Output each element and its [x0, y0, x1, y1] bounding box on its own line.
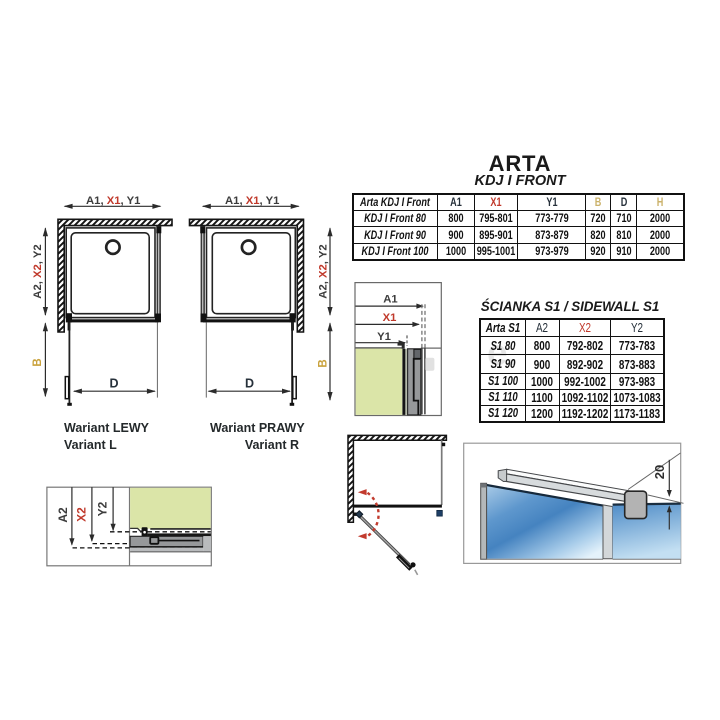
svg-text:A2, X2, Y2: A2, X2, Y2 [32, 244, 44, 298]
svg-text:A2: A2 [56, 507, 70, 523]
svg-text:A2, X2, Y2: A2, X2, Y2 [317, 244, 329, 298]
svg-text:B: B [317, 359, 329, 367]
svg-text:Y2: Y2 [96, 501, 110, 516]
svg-text:X2: X2 [75, 507, 89, 522]
svg-text:A1: A1 [383, 294, 397, 306]
svg-text:A1, X1, Y1: A1, X1, Y1 [225, 195, 279, 207]
svg-text:A1, X1, Y1: A1, X1, Y1 [86, 195, 140, 207]
svg-text:X1: X1 [383, 312, 397, 324]
svg-text:20: 20 [652, 465, 667, 479]
svg-text:Y1: Y1 [377, 331, 391, 343]
svg-text:D: D [245, 376, 254, 390]
svg-text:B: B [32, 358, 44, 366]
svg-text:D: D [109, 376, 118, 390]
